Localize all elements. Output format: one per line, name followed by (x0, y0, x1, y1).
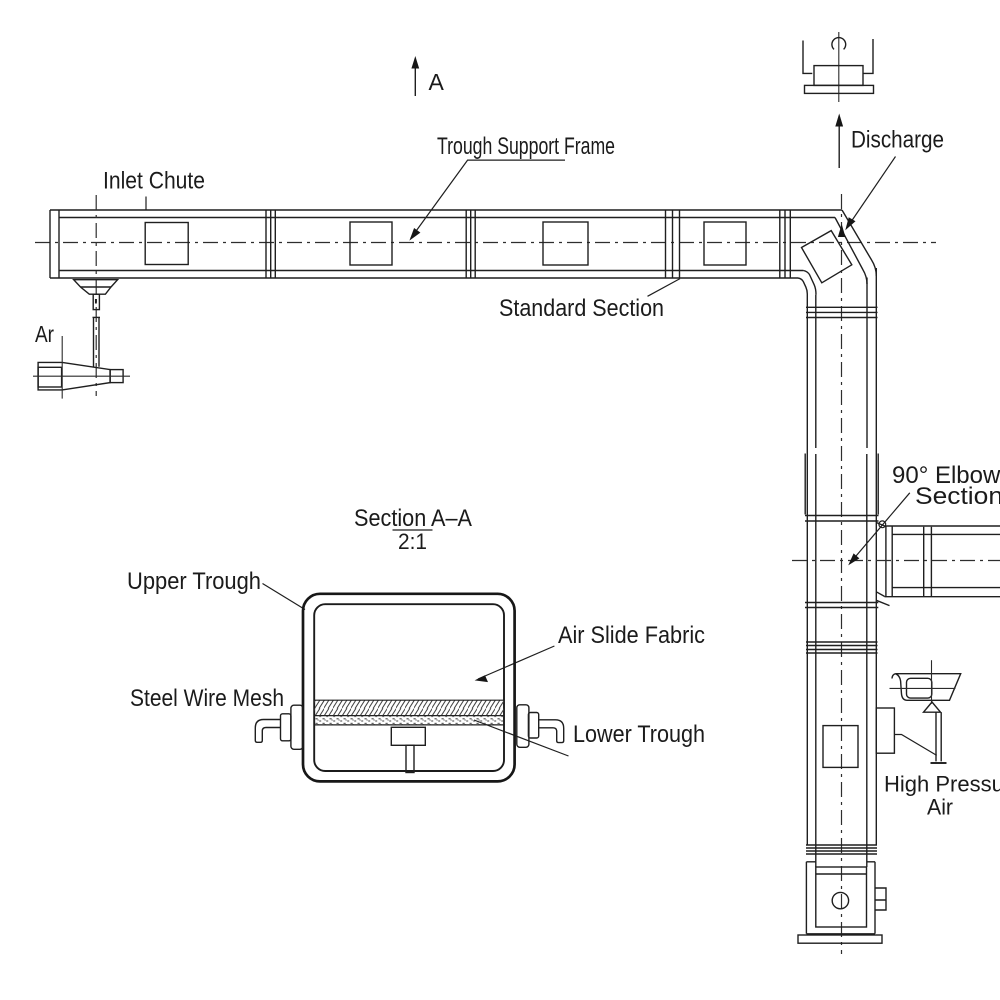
svg-text:Air Slide Fabric: Air Slide Fabric (558, 622, 705, 649)
svg-text:Trough Support Frame: Trough Support Frame (437, 133, 615, 160)
svg-text:Section A–A: Section A–A (354, 505, 472, 532)
svg-text:Ar: Ar (35, 321, 54, 347)
svg-text:Discharge: Discharge (851, 127, 944, 154)
svg-text:High Pressure: High Pressure (884, 772, 1000, 797)
svg-text:Inlet Chute: Inlet Chute (103, 168, 205, 195)
svg-text:2:1: 2:1 (398, 529, 427, 554)
svg-text:A: A (429, 69, 445, 95)
svg-text:Steel Wire Mesh: Steel Wire Mesh (130, 685, 284, 712)
svg-text:Lower Trough: Lower Trough (573, 721, 705, 748)
svg-text:Upper Trough: Upper Trough (127, 568, 261, 595)
svg-text:Air: Air (927, 795, 953, 820)
svg-text:Section: Section (915, 483, 1000, 510)
svg-text:Standard Section: Standard Section (499, 295, 664, 322)
